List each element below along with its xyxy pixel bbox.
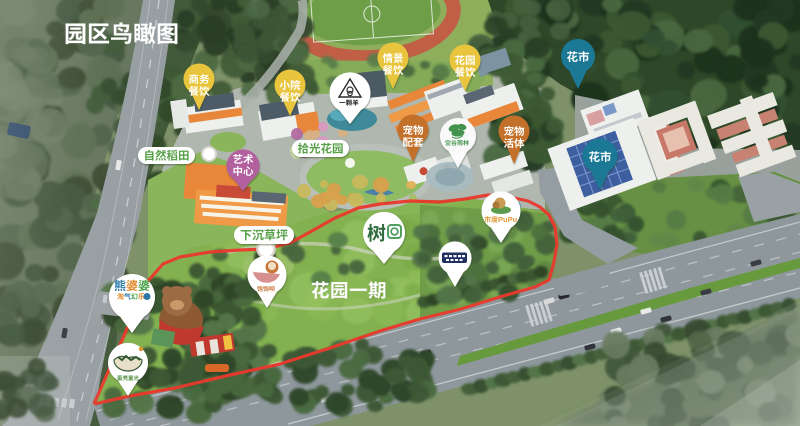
svg-text:PuPu: PuPu: [498, 215, 518, 224]
